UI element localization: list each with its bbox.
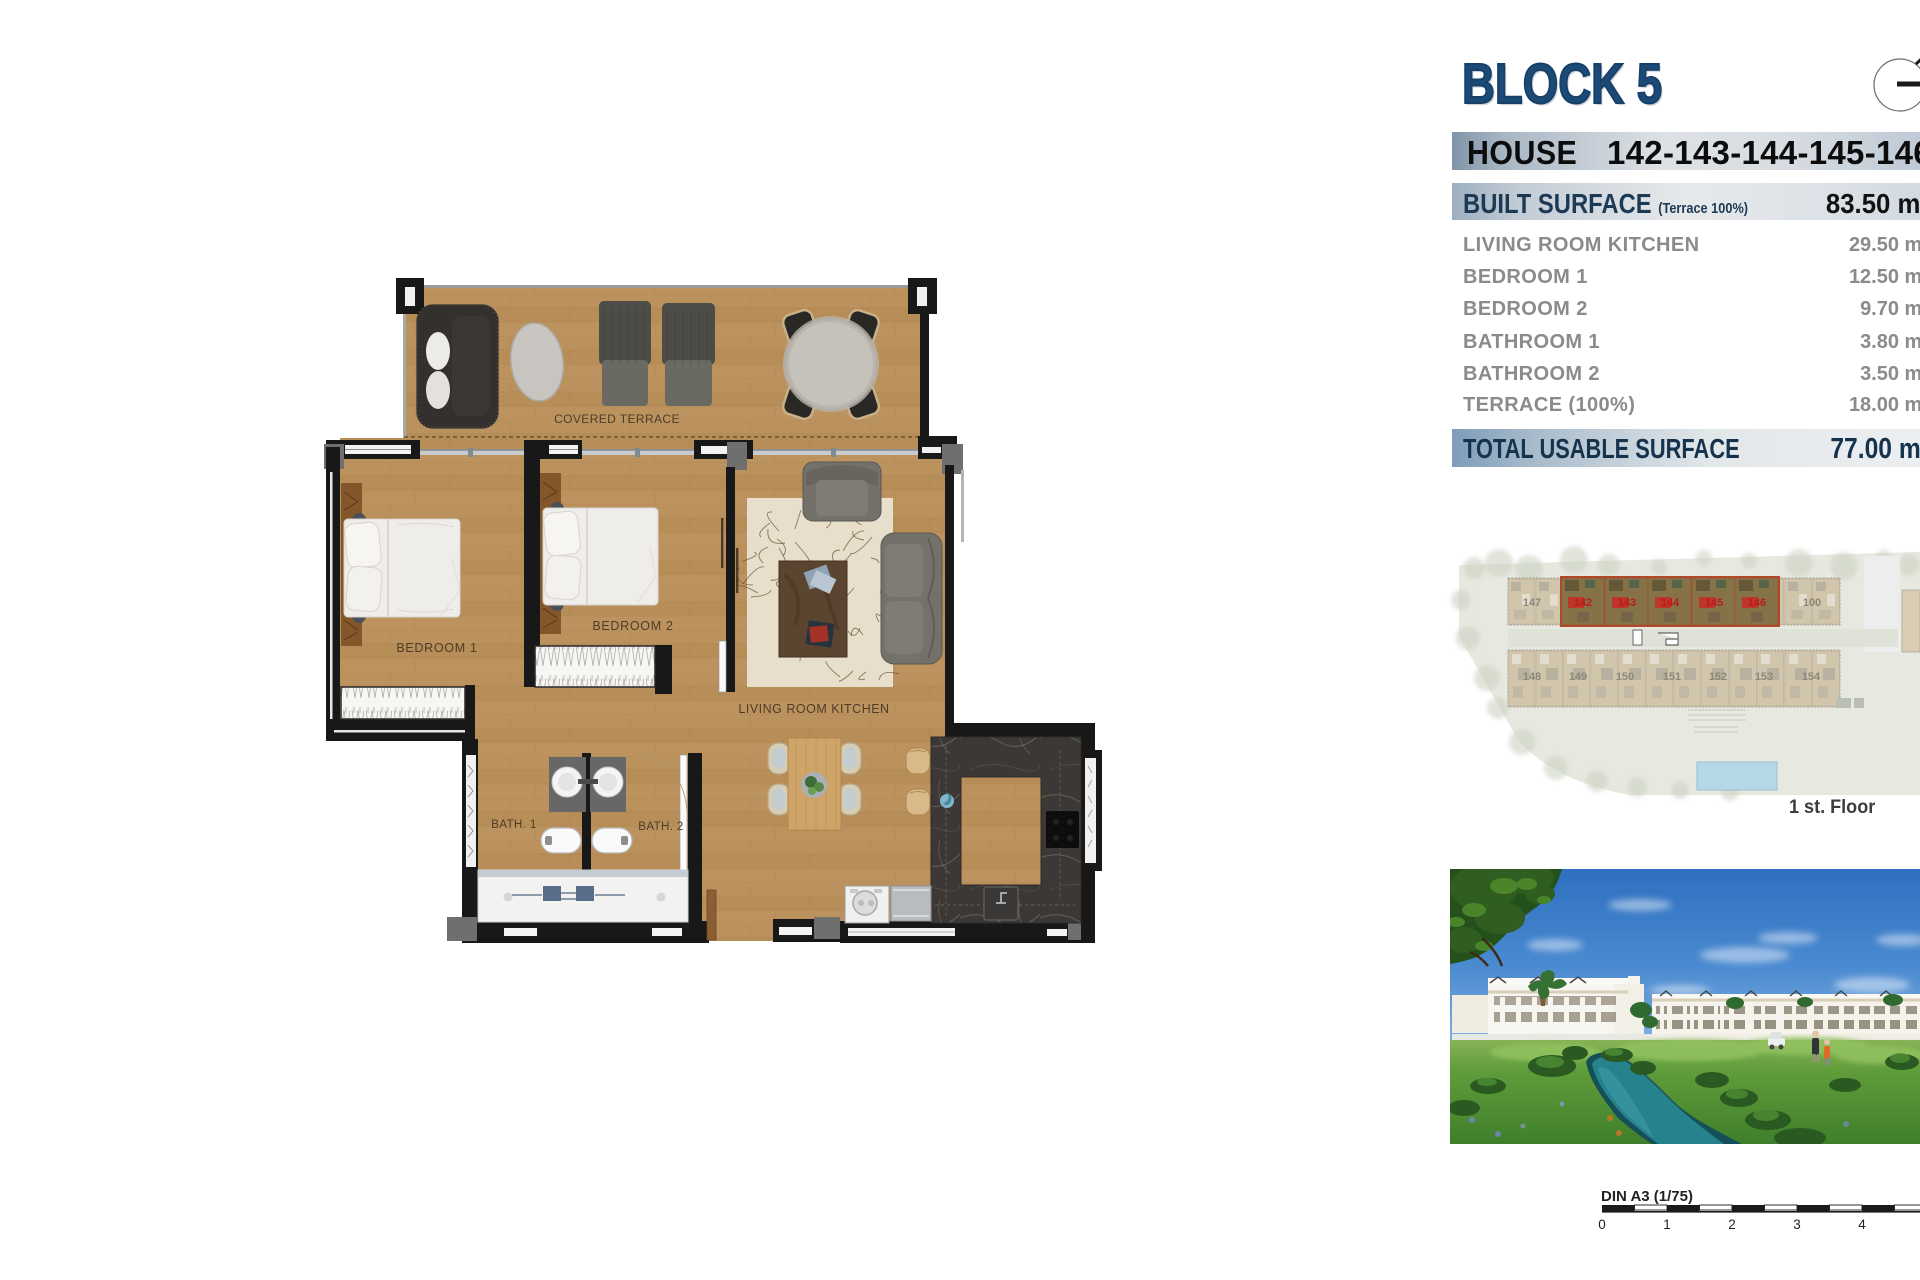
svg-text:152: 152 [1709, 671, 1727, 683]
svg-text:3: 3 [1793, 1217, 1801, 1232]
svg-text:145: 145 [1705, 597, 1723, 609]
svg-text:0: 0 [1598, 1217, 1606, 1232]
svg-text:150: 150 [1616, 671, 1634, 683]
svg-text:2: 2 [1728, 1217, 1736, 1232]
svg-text:1: 1 [1663, 1217, 1671, 1232]
svg-text:100: 100 [1803, 597, 1821, 609]
svg-text:143: 143 [1618, 597, 1636, 609]
svg-text:149: 149 [1569, 671, 1587, 683]
svg-text:151: 151 [1663, 671, 1681, 683]
svg-text:144: 144 [1661, 597, 1680, 609]
svg-text:148: 148 [1523, 671, 1541, 683]
svg-text:146: 146 [1748, 597, 1766, 609]
svg-text:4: 4 [1858, 1217, 1866, 1232]
svg-text:142: 142 [1574, 597, 1592, 609]
svg-text:153: 153 [1755, 671, 1773, 683]
svg-text:154: 154 [1802, 671, 1821, 683]
svg-text:147: 147 [1523, 597, 1541, 609]
